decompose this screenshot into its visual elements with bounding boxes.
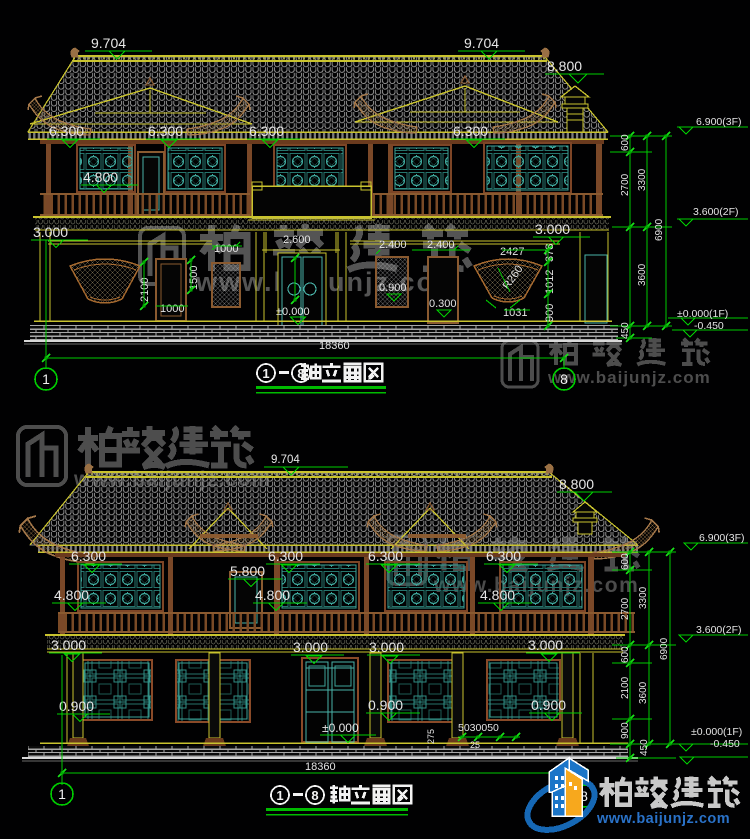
- svg-text:8: 8: [560, 371, 568, 387]
- svg-text:6.300: 6.300: [486, 548, 521, 564]
- svg-text:6900: 6900: [654, 218, 665, 241]
- svg-text:3300: 3300: [638, 586, 649, 609]
- svg-text:25: 25: [470, 740, 480, 750]
- svg-text:±0.000(1F): ±0.000(1F): [677, 308, 728, 320]
- svg-text:9.704: 9.704: [464, 35, 499, 51]
- svg-text:3.600(2F): 3.600(2F): [693, 206, 739, 218]
- svg-text:2100: 2100: [139, 278, 151, 302]
- svg-text:2100: 2100: [620, 676, 631, 699]
- svg-text:2.400: 2.400: [427, 239, 455, 251]
- svg-text:18360: 18360: [305, 761, 336, 773]
- svg-text:3300: 3300: [637, 168, 648, 191]
- svg-text:600: 600: [620, 553, 631, 570]
- svg-text:3.000: 3.000: [369, 639, 404, 655]
- svg-text:1: 1: [276, 788, 283, 803]
- svg-text:0.900: 0.900: [59, 698, 94, 714]
- svg-text:600: 600: [620, 646, 631, 663]
- svg-text:2.600: 2.600: [283, 234, 311, 246]
- svg-text:5.800: 5.800: [230, 563, 265, 579]
- svg-text:4.800: 4.800: [480, 587, 515, 603]
- svg-text:3.000: 3.000: [51, 637, 86, 653]
- svg-text:6.300: 6.300: [368, 548, 403, 564]
- svg-text:4.800: 4.800: [54, 587, 89, 603]
- svg-text:4.800: 4.800: [83, 169, 118, 185]
- svg-text:1000: 1000: [214, 243, 238, 255]
- svg-text:9.704: 9.704: [91, 35, 126, 51]
- svg-text:5030050: 5030050: [458, 722, 499, 734]
- svg-text:6.300: 6.300: [49, 123, 84, 139]
- svg-text:±0.000: ±0.000: [322, 721, 359, 735]
- svg-text:3.000: 3.000: [293, 639, 328, 655]
- svg-text:600: 600: [620, 134, 631, 151]
- svg-text:6.900(3F): 6.900(3F): [699, 532, 745, 544]
- svg-text:6.900(3F): 6.900(3F): [696, 116, 742, 128]
- svg-text:2.400: 2.400: [379, 239, 407, 251]
- svg-text:900: 900: [544, 304, 556, 322]
- svg-text:18360: 18360: [319, 340, 350, 352]
- svg-text:900: 900: [620, 722, 631, 739]
- svg-text:1000: 1000: [160, 303, 184, 315]
- svg-text:3.000: 3.000: [528, 637, 563, 653]
- svg-text:8: 8: [311, 788, 318, 803]
- svg-text:4.800: 4.800: [255, 587, 290, 603]
- svg-text:3.600(2F): 3.600(2F): [696, 624, 742, 636]
- svg-text:www.baijunjz.com: www.baijunjz.com: [596, 811, 730, 827]
- svg-text:0.900: 0.900: [531, 697, 566, 713]
- svg-text:3600: 3600: [638, 681, 649, 704]
- svg-text:1: 1: [262, 366, 269, 381]
- svg-text:0.900: 0.900: [368, 697, 403, 713]
- svg-text:1: 1: [42, 371, 50, 387]
- svg-text:6.300: 6.300: [148, 123, 183, 139]
- svg-text:1012: 1012: [544, 270, 556, 294]
- svg-text:0.900: 0.900: [379, 282, 407, 294]
- svg-text:-0.450: -0.450: [694, 320, 724, 332]
- svg-text:6.300: 6.300: [249, 123, 284, 139]
- svg-text:1: 1: [58, 786, 66, 802]
- svg-text:2700: 2700: [620, 597, 631, 620]
- svg-text:3.000: 3.000: [33, 224, 68, 240]
- svg-text:2427: 2427: [500, 246, 524, 258]
- svg-text:2700: 2700: [620, 173, 631, 196]
- svg-text:3600: 3600: [637, 263, 648, 286]
- svg-text:450: 450: [639, 739, 650, 756]
- svg-text:±0.000: ±0.000: [276, 306, 310, 318]
- svg-text:-0.450: -0.450: [710, 738, 740, 750]
- svg-text:8.800: 8.800: [547, 58, 582, 74]
- svg-text:±0.000(1F): ±0.000(1F): [691, 726, 742, 738]
- svg-text:6900: 6900: [659, 637, 670, 660]
- svg-text:8.800: 8.800: [559, 476, 594, 492]
- svg-text:6.300: 6.300: [268, 548, 303, 564]
- svg-text:0.300: 0.300: [429, 298, 457, 310]
- svg-text:3.000: 3.000: [535, 221, 570, 237]
- svg-text:9.704: 9.704: [271, 454, 300, 466]
- svg-text:6.300: 6.300: [71, 548, 106, 564]
- svg-text:275: 275: [426, 729, 436, 744]
- svg-text:450: 450: [620, 322, 631, 339]
- svg-text:1031: 1031: [503, 307, 527, 319]
- svg-text:6.300: 6.300: [453, 123, 488, 139]
